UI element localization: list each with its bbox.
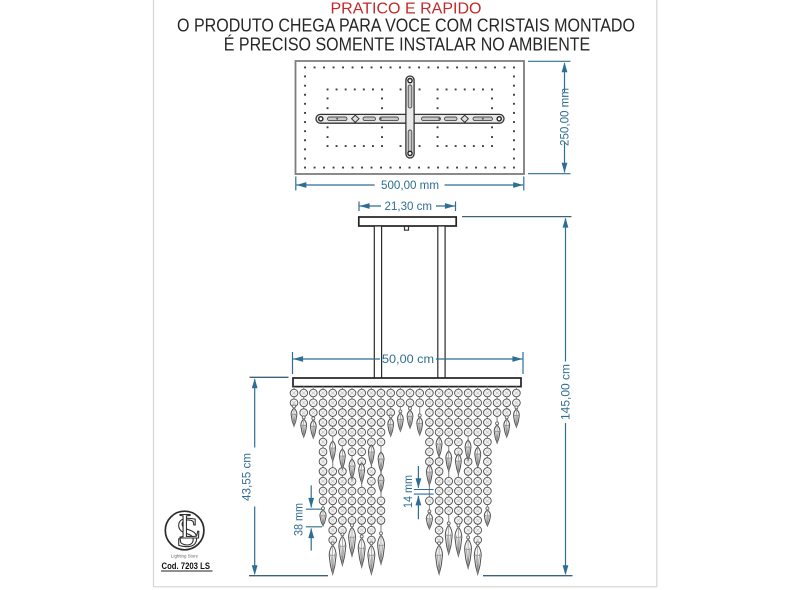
svg-text:É PRECISO SOMENTE INSTALAR NO: É PRECISO SOMENTE INSTALAR NO AMBIENTE (224, 33, 591, 54)
svg-text:Lighting Store: Lighting Store (171, 554, 199, 559)
svg-text:50,00 cm: 50,00 cm (382, 352, 434, 366)
svg-text:500,00 mm: 500,00 mm (381, 178, 439, 192)
svg-text:21,30 cm: 21,30 cm (385, 199, 433, 213)
svg-text:Cod. 7203 LS: Cod. 7203 LS (162, 561, 211, 571)
svg-text:L: L (179, 506, 201, 546)
svg-text:145,00 cm: 145,00 cm (559, 364, 573, 420)
svg-text:43,55 cm: 43,55 cm (240, 453, 254, 501)
svg-text:14 mm: 14 mm (401, 475, 415, 508)
svg-text:250,00 mm: 250,00 mm (558, 88, 572, 146)
svg-text:38 mm: 38 mm (291, 503, 305, 536)
